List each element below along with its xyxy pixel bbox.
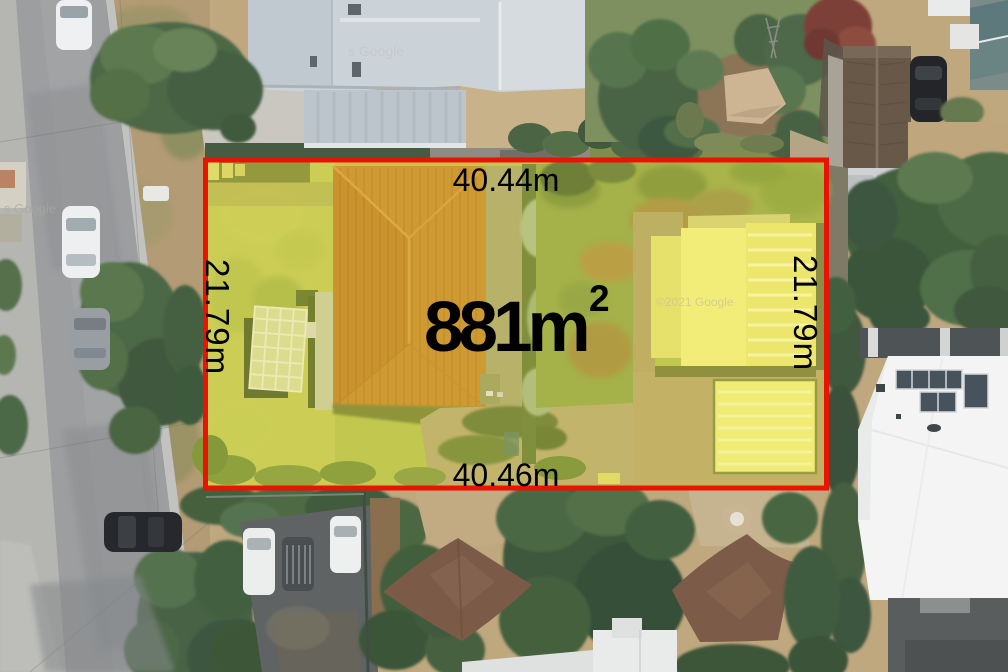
svg-text:40.44m: 40.44m (453, 162, 560, 198)
svg-text:40.46m: 40.46m (453, 457, 560, 493)
svg-text:s Google: s Google (348, 43, 404, 59)
svg-text:2: 2 (589, 278, 610, 319)
svg-text:©2021 Google: ©2021 Google (656, 295, 734, 309)
svg-text:s Google: s Google (4, 201, 56, 216)
svg-text:21.79m: 21.79m (199, 259, 236, 375)
svg-text:21.79m: 21.79m (787, 255, 824, 371)
svg-text:881m: 881m (424, 288, 586, 367)
